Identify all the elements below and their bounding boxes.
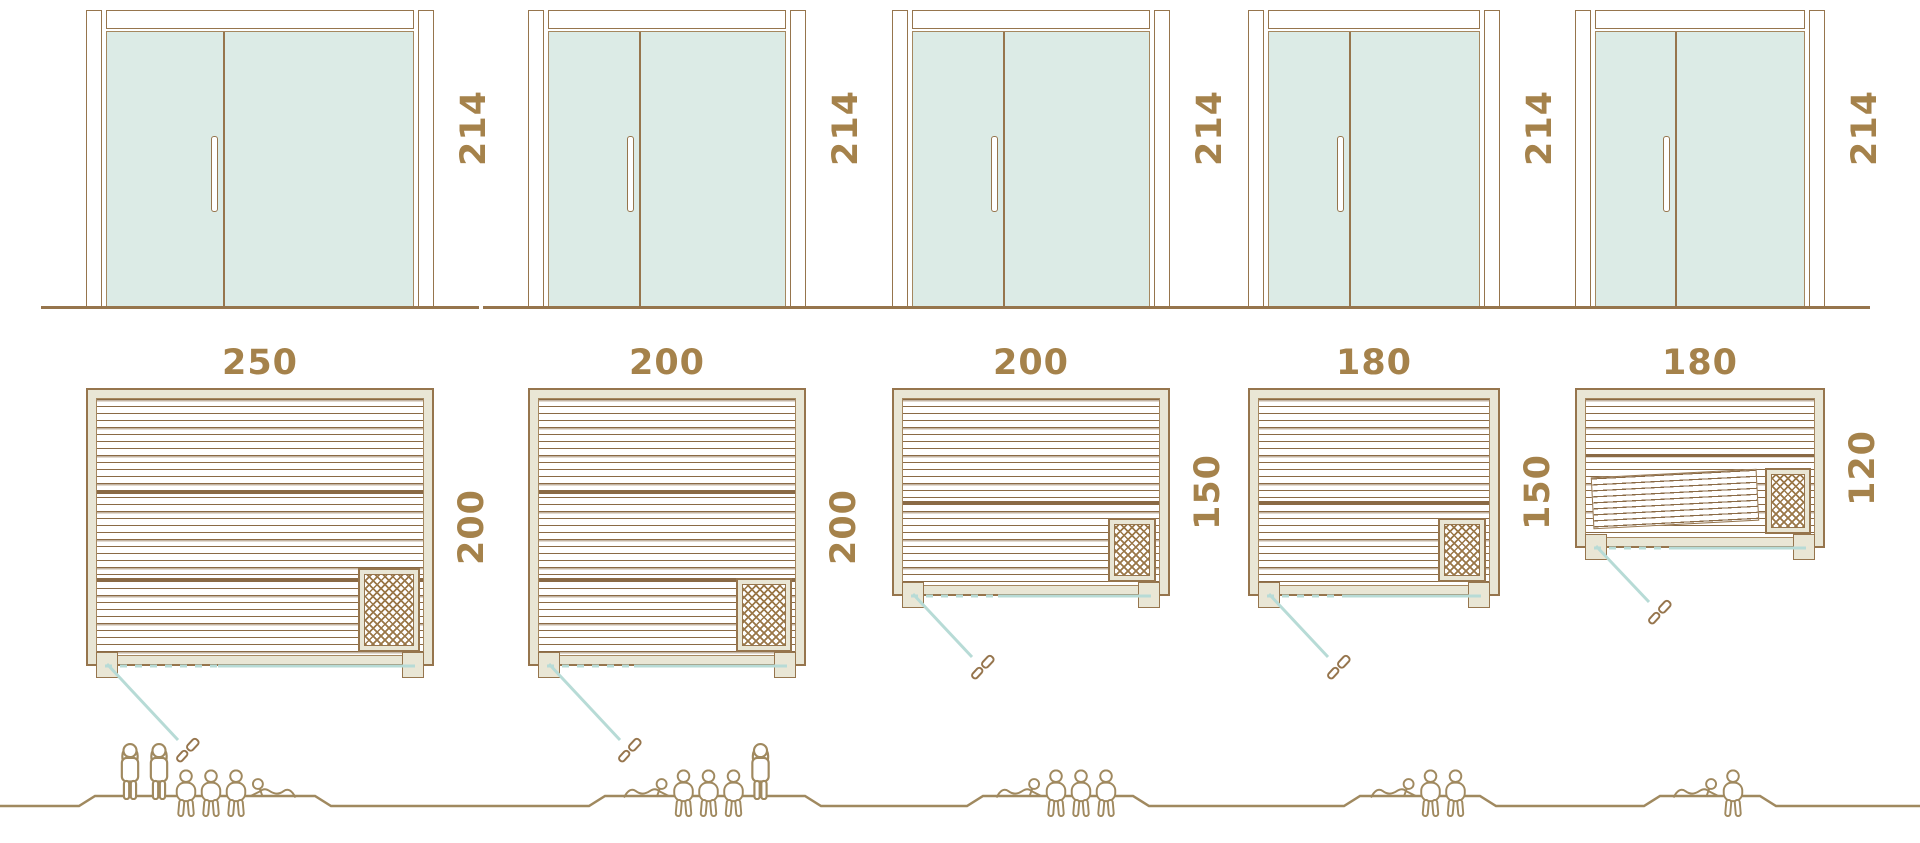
door-elevation: 214 [892,10,1170,307]
door-swing-line [107,664,178,740]
seated-person-icon [719,769,748,818]
door-top-frame [912,10,1150,29]
door-right-post [790,10,806,307]
door-height-dimension: 214 [1845,86,1885,170]
door-right-post [418,10,434,307]
heater-frame [1765,468,1811,534]
door-left-post [892,10,908,307]
size-variant-column-5: 214 180 120 [1575,0,1825,843]
door-swing-line [913,594,972,657]
heater-icon [1444,524,1480,576]
wood-planks [902,398,1160,586]
capacity-figures [998,769,1119,805]
glass-panel [1595,31,1805,307]
capacity-figures [1372,769,1468,805]
plan-width-dimension: 180 [1250,343,1498,383]
door-frame [1595,10,1805,307]
door-height-dimension: 214 [1520,86,1560,170]
heater-frame [1438,518,1486,582]
heater-icon [1114,524,1150,576]
door-handle [1663,136,1670,212]
floor-plan: 180 150 [1248,388,1500,596]
bench-edge-line [1586,454,1814,457]
seated-person-icon [1441,769,1470,818]
size-variant-column-4: 214 180 150 [1248,0,1500,843]
ground-line [847,306,1215,309]
door-leaf-divider [1675,32,1677,306]
door-right-post [1809,10,1825,307]
plan-width-dimension: 180 [1577,343,1823,383]
glass-panel [912,31,1150,307]
door-top-frame [548,10,786,29]
size-variant-column-1: 214 250 200 [86,0,434,843]
plan-depth-dimension: 150 [1518,450,1558,534]
lying-person-icon [1370,776,1420,800]
plan-width-dimension: 200 [530,343,804,383]
door-elevation: 214 [1248,10,1500,307]
floor-plan: 250 200 [86,388,434,666]
tilted-bench [1591,469,1759,530]
door-handle [991,136,998,212]
plan-door-swing [892,582,1170,732]
door-right-post [1484,10,1500,307]
door-swing-line [1269,594,1328,657]
glass-panel [1268,31,1480,307]
door-height-dimension: 214 [826,86,866,170]
door-left-post [1248,10,1264,307]
door-elevation: 214 [528,10,806,307]
bench-edge-line [1259,501,1489,504]
standing-person-icon [745,742,776,800]
door-top-frame [1595,10,1805,29]
plan-width-dimension: 200 [894,343,1168,383]
wood-planks [538,398,796,656]
bench-edge-line [97,491,423,494]
door-leaf-divider [1003,32,1005,306]
bench-edge-line [903,501,1159,504]
plan-depth-dimension: 200 [452,485,492,569]
ground-line [1203,306,1545,309]
floor-plan: 200 150 [892,388,1170,596]
lying-person-icon [247,776,297,800]
door-leaf-divider [223,32,225,306]
door-left-post [1575,10,1591,307]
heater-frame [1108,518,1156,582]
door-height-dimension: 214 [454,86,494,170]
door-handle [627,136,634,212]
door-leaf-divider [1349,32,1351,306]
heater-frame [736,578,792,652]
door-left-post [86,10,102,307]
door-handle [1337,136,1344,212]
capacity-figures [1675,769,1746,805]
capacity-figures [116,742,295,805]
size-variant-column-2: 214 200 200 [528,0,806,843]
door-frame [548,10,786,307]
door-frame [1268,10,1480,307]
door-elevation: 214 [86,10,434,307]
door-elevation: 214 [1575,10,1825,307]
size-variant-column-3: 214 200 150 [892,0,1170,843]
wood-planks [96,398,424,656]
floor-plan: 180 120 [1575,388,1825,548]
lying-person-icon [1673,776,1723,800]
seated-person-icon [1092,769,1121,818]
wood-planks [1585,398,1815,538]
plan-depth-dimension: 200 [824,485,864,569]
door-handle [211,136,218,212]
plan-depth-dimension: 150 [1188,450,1228,534]
door-handle-plan-icon [1327,655,1351,680]
door-left-post [528,10,544,307]
door-swing-line [1596,546,1649,602]
plan-door-swing [1575,534,1825,684]
heater-icon [364,574,414,646]
ground-line [1530,306,1870,309]
door-swing-line [549,664,620,740]
floor-plan: 200 200 [528,388,806,666]
standing-person-icon [115,742,146,800]
plan-door-swing [1248,582,1500,732]
wood-planks [1258,398,1490,586]
door-top-frame [1268,10,1480,29]
lying-person-icon [996,776,1046,800]
plan-width-dimension: 250 [88,343,432,383]
glass-panel [106,31,414,307]
door-leaf-divider [639,32,641,306]
heater-frame [358,568,420,652]
bench-edge-line [539,491,795,494]
heater-icon [742,584,786,646]
seated-person-icon [1719,769,1748,818]
door-height-dimension: 214 [1190,86,1230,170]
capacity-figures [625,742,775,805]
door-handle-plan-icon [971,655,995,680]
ground-line [483,306,851,309]
door-top-frame [106,10,414,29]
ground-line [41,306,479,309]
door-frame [912,10,1150,307]
door-right-post [1154,10,1170,307]
heater-icon [1771,474,1805,528]
door-frame [106,10,414,307]
standing-person-icon [144,742,175,800]
plan-depth-dimension: 120 [1843,426,1883,510]
glass-panel [548,31,786,307]
lying-person-icon [623,776,673,800]
door-handle-plan-icon [1648,600,1672,625]
sauna-size-comparison-diagram: 214 250 200 [0,0,1920,843]
